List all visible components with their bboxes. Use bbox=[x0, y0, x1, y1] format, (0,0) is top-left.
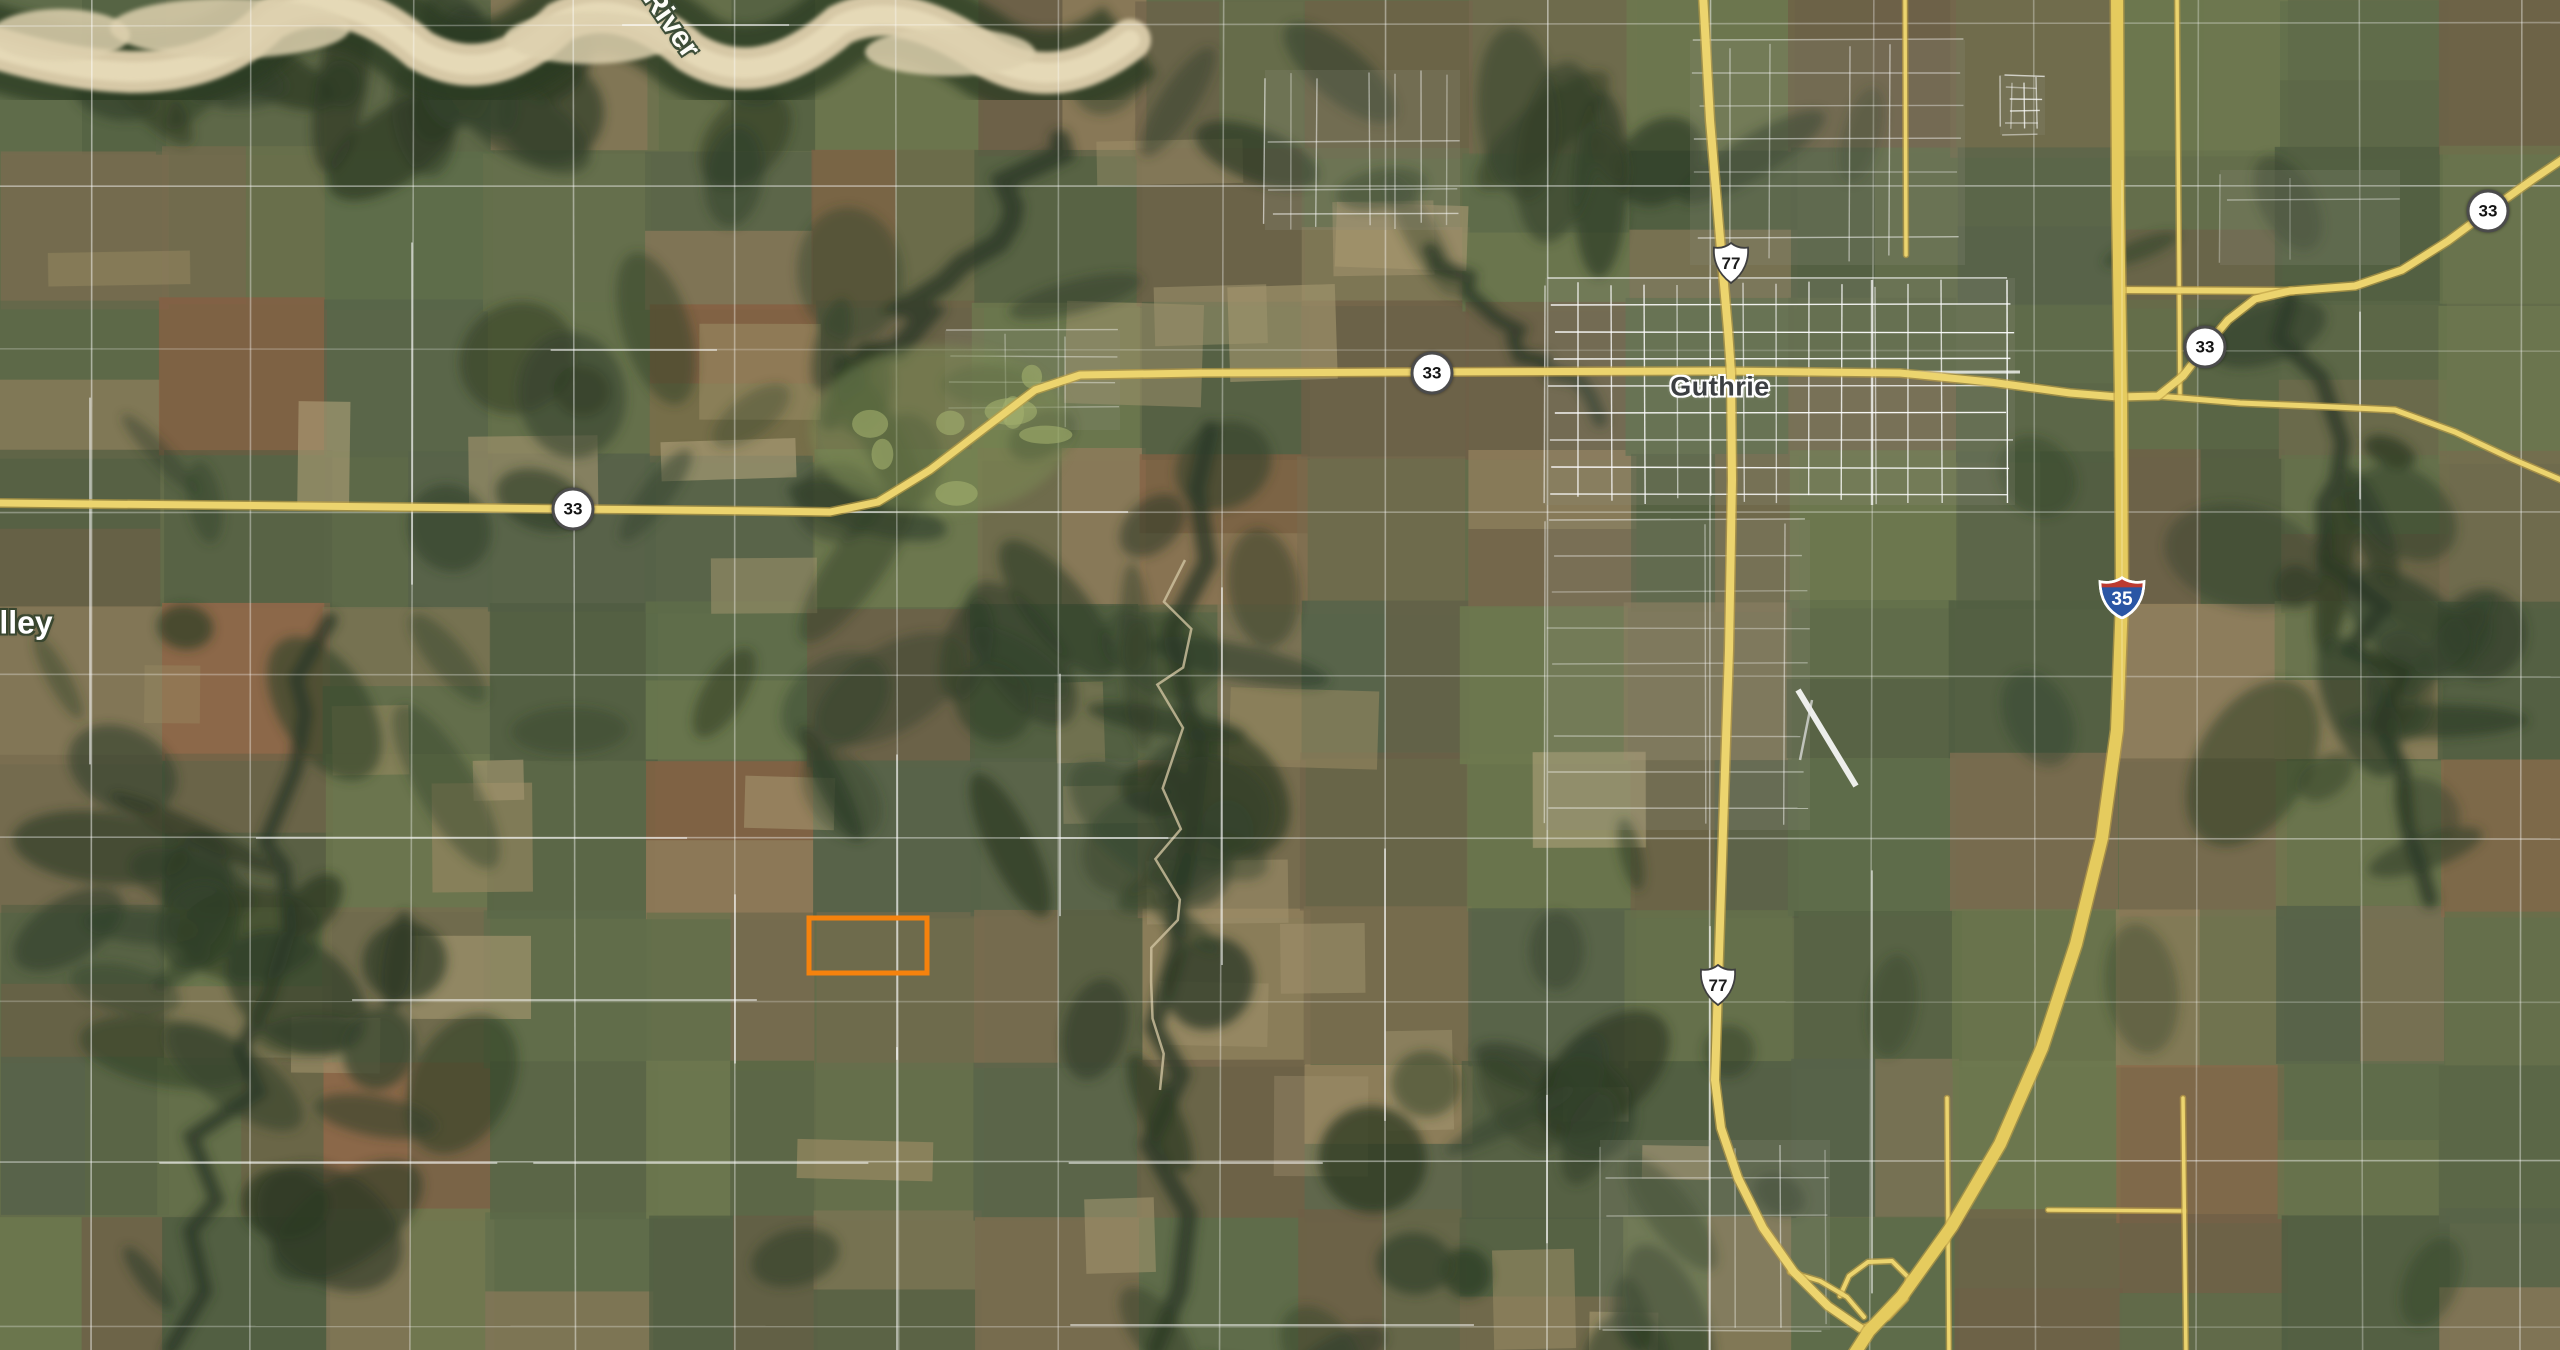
satellite-map-canvas[interactable] bbox=[0, 0, 2560, 1350]
map-viewport[interactable]: 77 77 35 33 33 33 bbox=[0, 0, 2560, 1350]
